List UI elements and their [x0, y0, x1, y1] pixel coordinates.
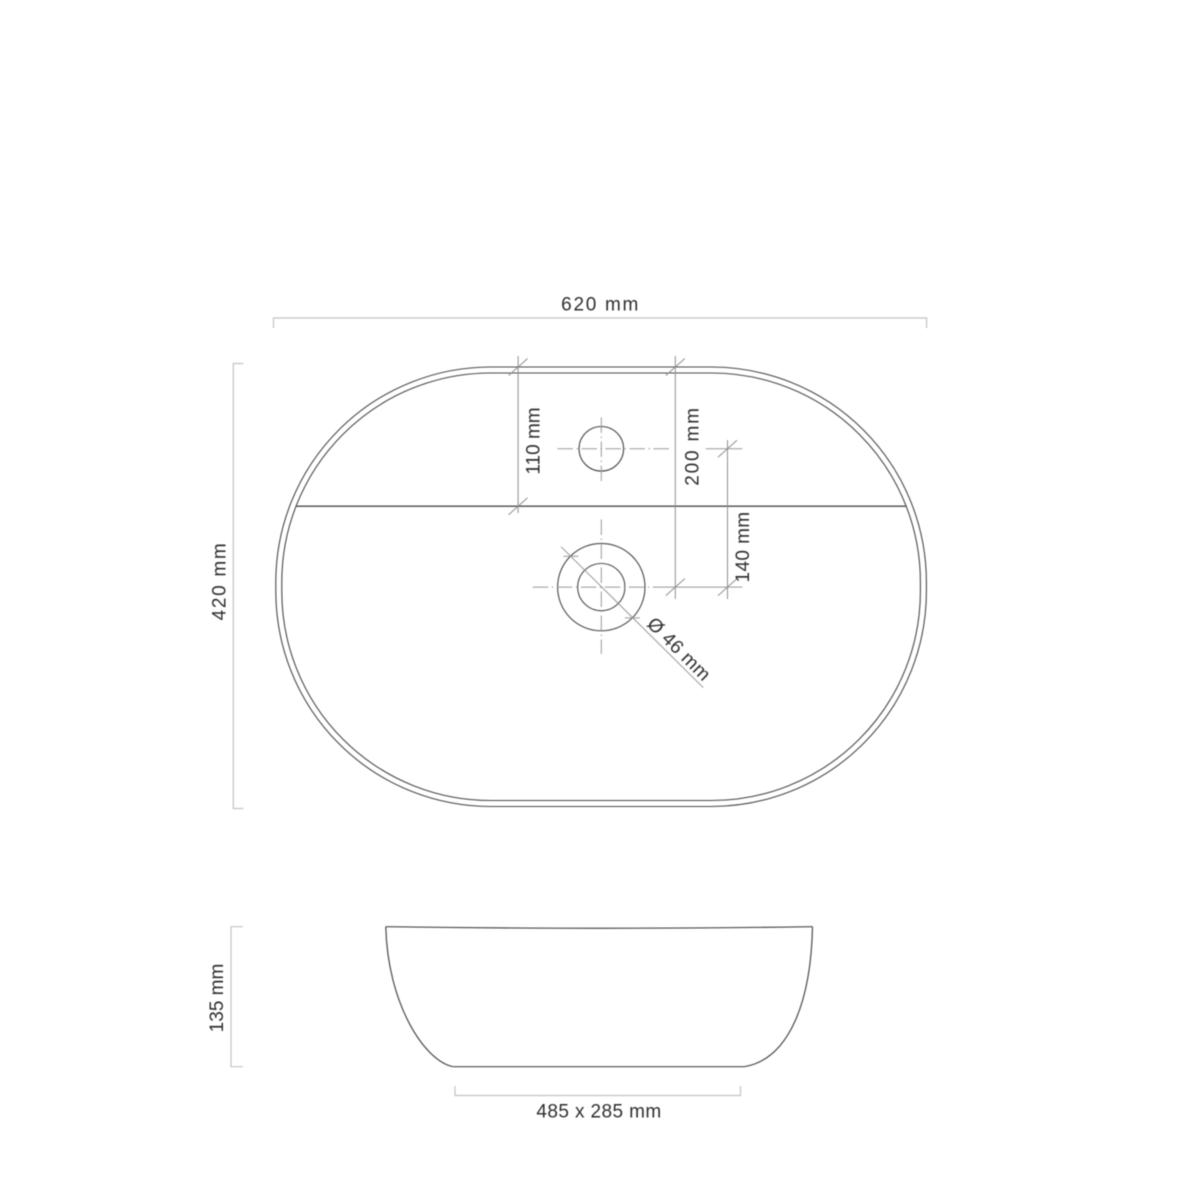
svg-text:140 mm: 140 mm: [733, 511, 754, 582]
svg-text:Ø 46 mm: Ø 46 mm: [642, 614, 714, 686]
svg-text:110 mm: 110 mm: [524, 407, 545, 474]
svg-text:485 x 285 mm: 485 x 285 mm: [536, 1102, 661, 1123]
svg-text:420 mm: 420 mm: [209, 542, 230, 621]
svg-text:620 mm: 620 mm: [561, 295, 640, 316]
svg-text:135 mm: 135 mm: [207, 964, 228, 1033]
svg-text:200 mm: 200 mm: [683, 406, 704, 485]
